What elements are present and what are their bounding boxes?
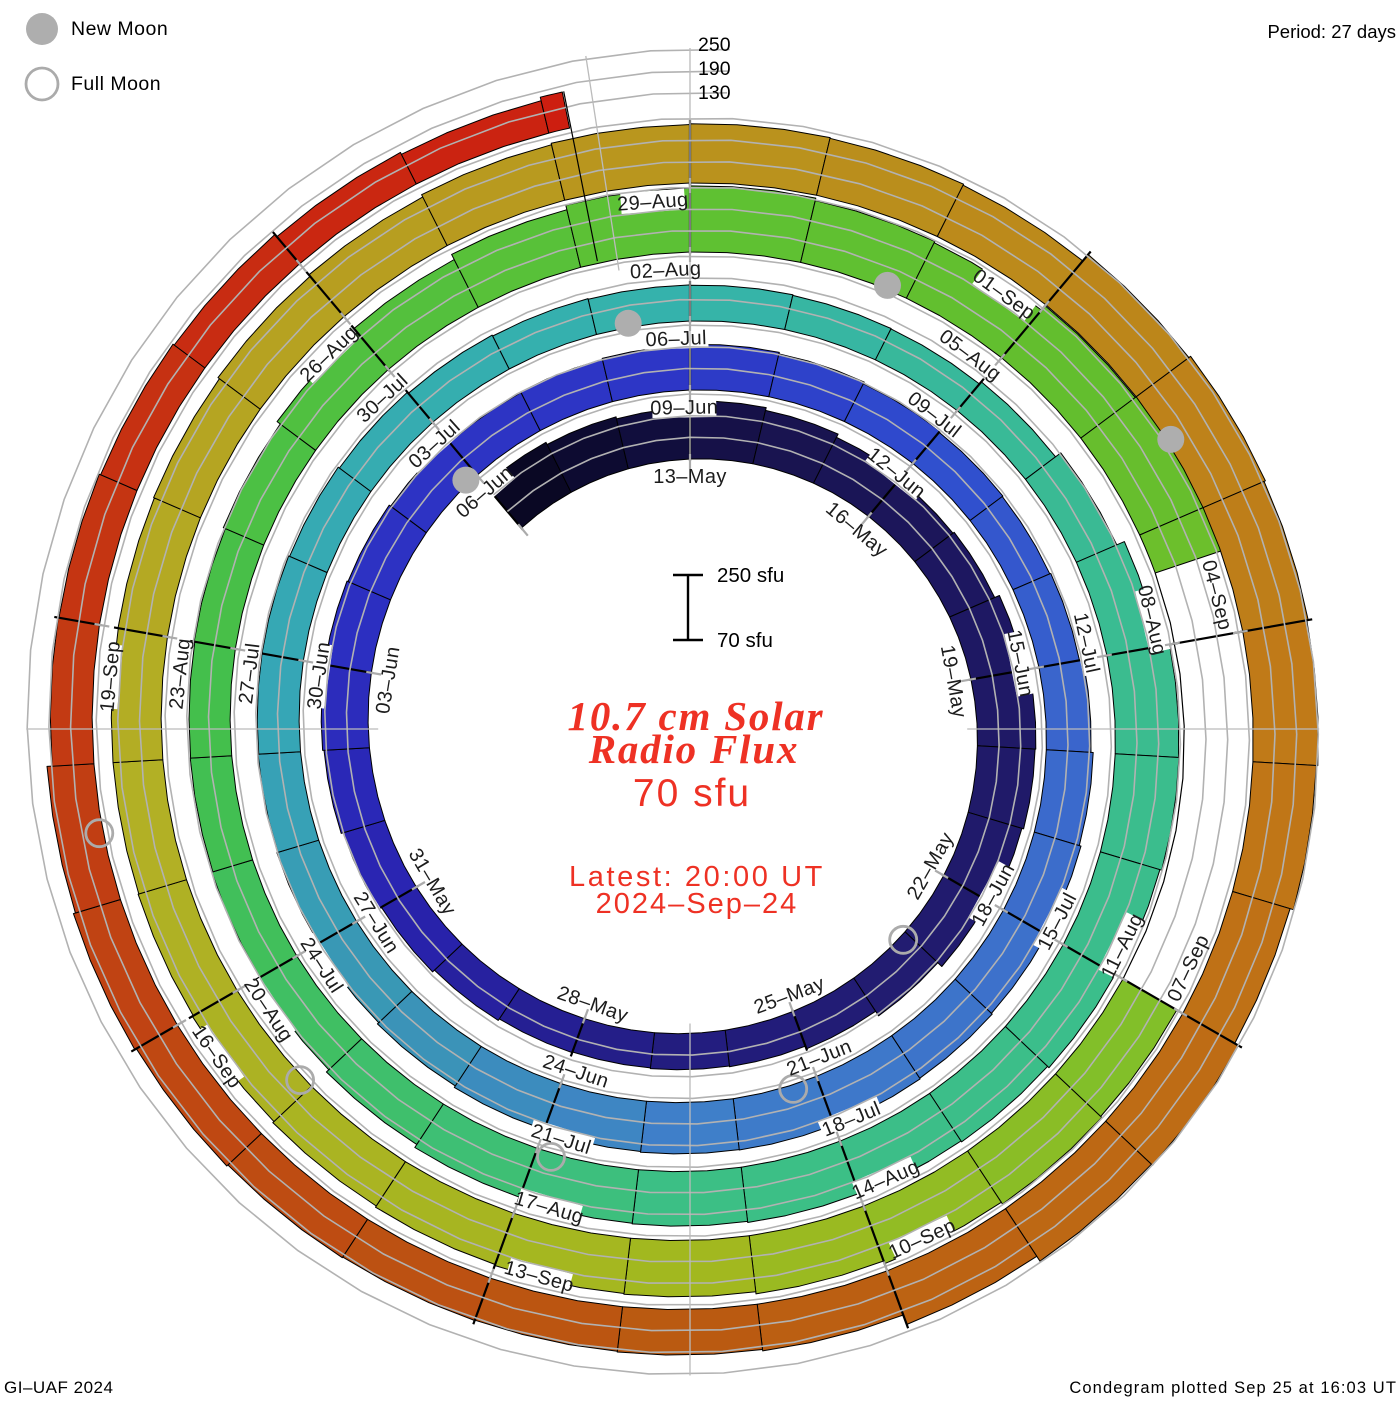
svg-text:GI–UAF 2024: GI–UAF 2024 xyxy=(4,1378,113,1397)
svg-text:13–May: 13–May xyxy=(653,466,727,488)
svg-text:New Moon: New Moon xyxy=(71,18,168,40)
svg-text:190: 190 xyxy=(698,58,731,80)
svg-text:09–Jun: 09–Jun xyxy=(650,396,718,419)
svg-text:Condegram plotted Sep 25 at 16: Condegram plotted Sep 25 at 16:03 UT xyxy=(1069,1379,1397,1397)
svg-text:2024–Sep–24: 2024–Sep–24 xyxy=(596,888,799,920)
svg-text:130: 130 xyxy=(698,82,731,104)
svg-text:Full Moon: Full Moon xyxy=(71,73,161,95)
svg-text:250 sfu: 250 sfu xyxy=(717,564,784,587)
svg-text:Radio Flux: Radio Flux xyxy=(588,726,800,772)
svg-text:06–Jul: 06–Jul xyxy=(645,327,707,351)
svg-text:70 sfu: 70 sfu xyxy=(717,629,773,652)
svg-text:02–Aug: 02–Aug xyxy=(630,258,702,284)
svg-text:Period: 27 days: Period: 27 days xyxy=(1267,21,1396,42)
svg-text:70 sfu: 70 sfu xyxy=(633,772,751,815)
svg-text:250: 250 xyxy=(698,34,731,56)
